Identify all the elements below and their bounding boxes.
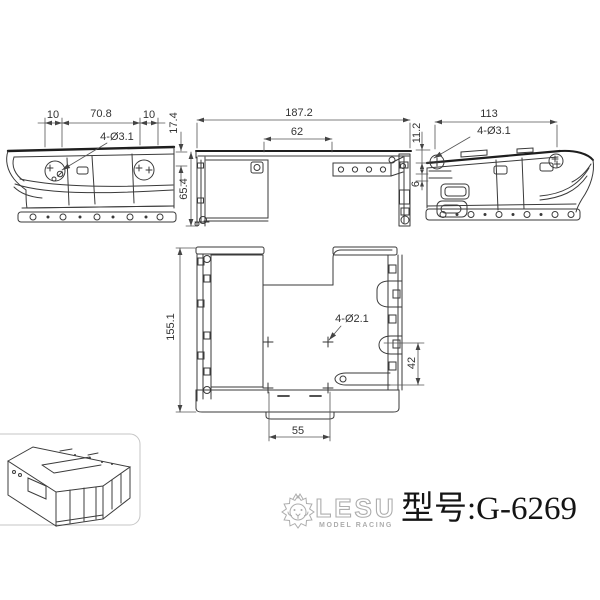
dim-top-187-2: 187.2 xyxy=(276,107,322,119)
dim-plan-42: 42 xyxy=(406,353,418,373)
bolt-plate xyxy=(333,157,403,176)
dim-top-62: 62 xyxy=(285,126,309,138)
dimension-arrows xyxy=(45,118,557,440)
lesu-wordmark: LESU xyxy=(315,493,396,523)
lesu-lion-logo-icon xyxy=(282,494,314,528)
label-holes-right: 4-Ø3.1 xyxy=(468,125,520,137)
technical-drawing-page: LESU MODEL RACING 10 70.8 10 4-Ø3.1 17.4… xyxy=(0,0,600,600)
plan-view xyxy=(196,247,402,419)
hole-cross-marks xyxy=(263,337,333,393)
dim-right-11-2: 11.2 xyxy=(411,118,423,148)
dim-left-10b: 10 xyxy=(136,109,162,121)
label-holes-plan: 4-Ø2.1 xyxy=(326,313,378,325)
dim-left-10a: 10 xyxy=(40,109,66,121)
dim-left-17-4: 17.4 xyxy=(168,108,180,138)
left-side-view xyxy=(7,147,176,222)
label-holes-left: 4-Ø3.1 xyxy=(91,131,143,143)
iso-3d-view xyxy=(8,447,130,526)
rail-holes-left xyxy=(30,214,163,220)
model-number-title: 型号:G-6269 xyxy=(401,489,597,529)
dim-left-70-8: 70.8 xyxy=(83,108,119,120)
hole-circle-left xyxy=(45,161,65,181)
hole-circle-mid xyxy=(549,154,563,168)
dim-left-65-4: 65.4 xyxy=(178,174,190,204)
dimension-lines xyxy=(38,118,557,441)
hole-circle-right xyxy=(134,160,154,180)
top-view xyxy=(195,151,411,226)
dim-right-6: 6 xyxy=(410,176,422,192)
dim-plan-55: 55 xyxy=(286,425,310,437)
lesu-tagline: MODEL RACING xyxy=(319,522,393,529)
right-side-view xyxy=(426,148,594,220)
dim-right-113: 113 xyxy=(473,108,505,120)
dim-plan-155-1: 155.1 xyxy=(165,308,177,346)
